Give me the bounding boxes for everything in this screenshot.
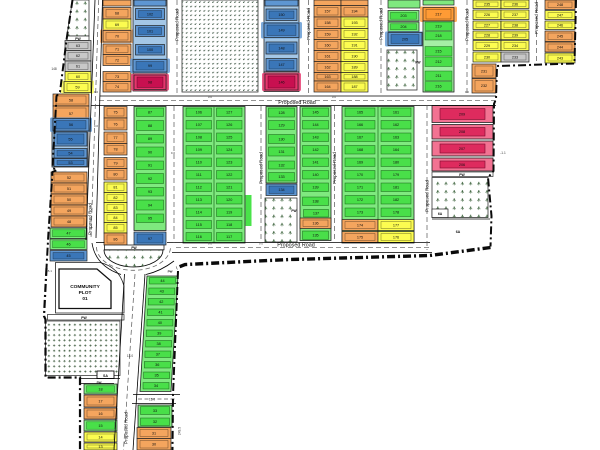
- svg-text:161: 161: [324, 54, 330, 58]
- svg-text:160: 160: [324, 43, 330, 47]
- svg-text:176: 176: [393, 235, 399, 239]
- svg-text:57: 57: [69, 112, 73, 116]
- svg-text:182: 182: [393, 198, 399, 202]
- svg-text:74: 74: [115, 85, 119, 89]
- svg-text:30: 30: [152, 443, 156, 447]
- svg-text:162: 162: [393, 123, 399, 127]
- svg-text:208: 208: [459, 130, 465, 134]
- svg-text:Proposed Road: Proposed Road: [175, 9, 180, 41]
- svg-text:Proposed Road: Proposed Road: [278, 100, 315, 106]
- svg-text:164: 164: [393, 148, 399, 152]
- svg-text:246: 246: [557, 24, 563, 28]
- svg-text:118: 118: [226, 223, 232, 227]
- svg-text:112: 112: [196, 186, 202, 190]
- svg-text:98: 98: [148, 81, 152, 85]
- svg-text:53: 53: [68, 161, 72, 165]
- svg-text:149: 149: [278, 29, 284, 33]
- svg-text:Proposed Road: Proposed Road: [379, 8, 384, 40]
- svg-text:211: 211: [435, 74, 441, 78]
- svg-text:145: 145: [312, 111, 318, 115]
- svg-text:PLOT: PLOT: [79, 290, 92, 296]
- svg-text:147: 147: [278, 63, 284, 67]
- svg-text:168: 168: [357, 148, 363, 152]
- svg-text:Proposed Road: Proposed Road: [124, 412, 129, 444]
- svg-text:157: 157: [324, 10, 330, 14]
- svg-text:108: 108: [196, 136, 202, 140]
- svg-text:77: 77: [113, 136, 117, 140]
- svg-text:228: 228: [484, 34, 490, 38]
- svg-text:92: 92: [148, 177, 152, 181]
- svg-text:31: 31: [152, 431, 156, 435]
- svg-text:107: 107: [196, 123, 202, 127]
- svg-text:76: 76: [113, 122, 117, 126]
- svg-text:111: 111: [196, 173, 202, 177]
- svg-text:235: 235: [484, 3, 490, 7]
- svg-text:Proposed Road: Proposed Road: [277, 243, 314, 249]
- svg-text:207: 207: [459, 147, 465, 151]
- svg-text:9.0: 9.0: [332, 95, 337, 99]
- svg-text:247: 247: [557, 13, 563, 17]
- svg-text:79: 79: [113, 161, 117, 165]
- svg-text:236: 236: [512, 3, 518, 7]
- svg-text:9.0: 9.0: [171, 151, 176, 155]
- svg-text:100: 100: [147, 48, 153, 52]
- svg-text:179: 179: [393, 173, 399, 177]
- svg-text:15.0: 15.0: [149, 398, 155, 402]
- svg-text:68: 68: [115, 12, 119, 16]
- svg-text:206: 206: [459, 163, 465, 167]
- svg-text:106: 106: [196, 111, 202, 115]
- svg-text:Proposed Road: Proposed Road: [306, 8, 311, 40]
- svg-text:18: 18: [98, 387, 102, 391]
- svg-text:144: 144: [312, 123, 318, 127]
- svg-text:116: 116: [196, 235, 202, 239]
- svg-text:181: 181: [393, 186, 399, 190]
- svg-text:78: 78: [113, 148, 117, 152]
- svg-text:137: 137: [313, 212, 319, 216]
- svg-text:14: 14: [98, 435, 102, 439]
- svg-text:114: 114: [196, 211, 202, 215]
- svg-text:9.0: 9.0: [465, 90, 470, 94]
- svg-text:Proposed Road: Proposed Road: [88, 203, 93, 235]
- svg-text:115: 115: [196, 223, 202, 227]
- svg-text:125: 125: [226, 136, 232, 140]
- svg-text:36: 36: [155, 363, 159, 367]
- svg-text:248: 248: [557, 3, 563, 7]
- svg-text:90: 90: [148, 150, 152, 154]
- svg-text:6A: 6A: [456, 230, 461, 234]
- svg-text:97: 97: [148, 237, 152, 241]
- svg-text:PW: PW: [168, 270, 173, 274]
- svg-text:146: 146: [278, 80, 284, 84]
- svg-text:62: 62: [76, 54, 80, 58]
- svg-text:13.0: 13.0: [127, 354, 133, 358]
- svg-text:180: 180: [393, 161, 399, 165]
- svg-text:PW: PW: [131, 246, 137, 250]
- svg-text:-1.1: -1.1: [500, 151, 506, 155]
- svg-text:88: 88: [148, 124, 152, 128]
- svg-text:159: 159: [324, 32, 330, 36]
- svg-text:9.0: 9.0: [94, 124, 99, 128]
- svg-text:165: 165: [357, 111, 363, 115]
- svg-text:Proposed Road: Proposed Road: [465, 9, 470, 41]
- svg-text:01: 01: [82, 296, 88, 302]
- svg-text:131: 131: [278, 150, 284, 154]
- svg-text:192: 192: [351, 32, 357, 36]
- svg-text:193: 193: [351, 21, 357, 25]
- svg-text:58: 58: [69, 98, 73, 102]
- svg-text:134: 134: [278, 188, 284, 192]
- svg-text:6A: 6A: [438, 212, 443, 216]
- svg-text:17: 17: [98, 399, 102, 403]
- svg-text:46: 46: [66, 243, 70, 247]
- svg-text:174: 174: [357, 223, 363, 227]
- svg-text:171: 171: [357, 186, 363, 190]
- svg-text:109: 109: [196, 148, 202, 152]
- svg-text:233: 233: [512, 55, 518, 59]
- svg-text:123: 123: [226, 161, 232, 165]
- svg-text:Proposed Road: Proposed Road: [259, 152, 264, 184]
- svg-text:71: 71: [115, 48, 119, 52]
- svg-text:13: 13: [98, 445, 102, 449]
- svg-text:128: 128: [278, 111, 284, 115]
- svg-text:45: 45: [66, 254, 70, 258]
- svg-text:Proposed Road: Proposed Road: [534, 2, 539, 34]
- svg-text:54: 54: [68, 152, 72, 156]
- svg-text:PW: PW: [459, 173, 465, 177]
- svg-text:243: 243: [557, 56, 563, 60]
- svg-text:42: 42: [159, 300, 163, 304]
- svg-text:73: 73: [115, 75, 119, 79]
- svg-text:59: 59: [75, 85, 79, 89]
- svg-text:44: 44: [160, 279, 164, 283]
- svg-text:164: 164: [324, 85, 330, 89]
- svg-text:194: 194: [351, 10, 357, 14]
- svg-text:16: 16: [98, 412, 102, 416]
- svg-text:161: 161: [393, 111, 399, 115]
- svg-text:139: 139: [312, 186, 318, 190]
- svg-text:SA: SA: [103, 374, 108, 378]
- svg-text:126: 126: [226, 123, 232, 127]
- svg-text:56: 56: [69, 123, 73, 127]
- svg-text:9.0: 9.0: [94, 90, 99, 94]
- svg-text:PW: PW: [415, 61, 420, 65]
- svg-text:226: 226: [484, 13, 490, 17]
- svg-text:189: 189: [351, 65, 357, 69]
- svg-text:172: 172: [357, 198, 363, 202]
- svg-text:212: 212: [435, 60, 441, 64]
- svg-text:COMMUNITY: COMMUNITY: [70, 284, 100, 290]
- svg-text:230: 230: [484, 55, 490, 59]
- svg-text:Proposed Road: Proposed Road: [425, 180, 430, 212]
- svg-text:237: 237: [512, 13, 518, 17]
- svg-text:60: 60: [76, 75, 80, 79]
- svg-text:170: 170: [357, 173, 363, 177]
- svg-text:33: 33: [153, 409, 157, 413]
- svg-text:Proposed Road: Proposed Road: [332, 152, 337, 184]
- svg-text:163: 163: [393, 136, 399, 140]
- svg-text:121: 121: [226, 186, 232, 190]
- svg-text:9.0: 9.0: [259, 242, 264, 246]
- svg-text:249.5: 249.5: [178, 427, 182, 435]
- svg-text:217: 217: [435, 13, 441, 17]
- svg-text:175: 175: [357, 235, 363, 239]
- svg-text:83: 83: [113, 206, 117, 210]
- svg-text:32: 32: [153, 420, 157, 424]
- svg-text:234: 234: [512, 44, 518, 48]
- svg-text:162: 162: [324, 65, 330, 69]
- svg-text:84: 84: [113, 216, 117, 220]
- svg-text:43: 43: [160, 290, 164, 294]
- svg-text:119: 119: [226, 211, 232, 215]
- svg-text:238: 238: [512, 24, 518, 28]
- svg-text:178: 178: [393, 211, 399, 215]
- svg-text:86: 86: [113, 237, 117, 241]
- svg-text:191: 191: [351, 43, 357, 47]
- svg-text:9.0: 9.0: [208, 242, 213, 246]
- svg-text:229: 229: [484, 44, 490, 48]
- svg-text:215: 215: [435, 50, 441, 54]
- svg-text:216: 216: [435, 85, 441, 89]
- svg-text:203: 203: [400, 14, 406, 18]
- svg-text:PW: PW: [291, 209, 296, 213]
- svg-text:72: 72: [115, 58, 119, 62]
- svg-text:81: 81: [113, 186, 117, 190]
- svg-text:80: 80: [113, 173, 117, 177]
- svg-text:117: 117: [226, 235, 232, 239]
- svg-text:95: 95: [148, 217, 152, 221]
- svg-text:148: 148: [51, 67, 57, 71]
- svg-text:85: 85: [113, 226, 117, 230]
- svg-text:142: 142: [312, 148, 318, 152]
- svg-text:40: 40: [158, 321, 162, 325]
- svg-text:190: 190: [351, 54, 357, 58]
- svg-text:133: 133: [278, 175, 284, 179]
- svg-text:129: 129: [278, 123, 284, 127]
- svg-text:204: 204: [400, 25, 406, 29]
- svg-text:163: 163: [324, 75, 330, 79]
- svg-text:150: 150: [278, 13, 284, 17]
- svg-text:99: 99: [148, 64, 152, 68]
- svg-text:135: 135: [312, 234, 318, 238]
- svg-text:120: 120: [226, 198, 232, 202]
- svg-text:187: 187: [351, 85, 357, 89]
- svg-text:227: 227: [484, 24, 490, 28]
- svg-text:218: 218: [435, 34, 441, 38]
- svg-text:173: 173: [357, 211, 363, 215]
- svg-text:239: 239: [512, 34, 518, 38]
- svg-text:166: 166: [357, 123, 363, 127]
- svg-text:50: 50: [67, 198, 71, 202]
- svg-text:94: 94: [148, 203, 152, 207]
- svg-text:41: 41: [158, 311, 162, 315]
- svg-text:245: 245: [557, 35, 563, 39]
- svg-text:130: 130: [278, 137, 284, 141]
- svg-text:143: 143: [312, 136, 318, 140]
- svg-text:9.0: 9.0: [208, 95, 213, 99]
- svg-text:113: 113: [196, 198, 202, 202]
- svg-text:122: 122: [226, 173, 232, 177]
- svg-text:52: 52: [67, 176, 71, 180]
- svg-text:63: 63: [76, 44, 80, 48]
- svg-text:158: 158: [324, 21, 330, 25]
- svg-text:89: 89: [148, 137, 152, 141]
- svg-text:82: 82: [113, 196, 117, 200]
- svg-text:136: 136: [312, 222, 318, 226]
- svg-text:127: 127: [226, 111, 232, 115]
- svg-text:48: 48: [67, 220, 71, 224]
- svg-text:35: 35: [154, 374, 158, 378]
- svg-text:209: 209: [459, 112, 465, 116]
- svg-text:231: 231: [481, 69, 487, 73]
- svg-text:47: 47: [66, 232, 70, 236]
- svg-text:148: 148: [278, 46, 284, 50]
- svg-text:51: 51: [67, 187, 71, 191]
- svg-text:34: 34: [154, 384, 158, 388]
- svg-text:101: 101: [147, 29, 153, 33]
- svg-text:70: 70: [115, 35, 119, 39]
- svg-text:167: 167: [357, 136, 363, 140]
- svg-text:110: 110: [196, 161, 202, 165]
- svg-text:15: 15: [98, 424, 102, 428]
- svg-text:140: 140: [312, 173, 318, 177]
- svg-text:37: 37: [156, 353, 160, 357]
- svg-text:38: 38: [156, 342, 160, 346]
- svg-text:232: 232: [481, 84, 487, 88]
- svg-text:188: 188: [351, 75, 357, 79]
- svg-text:141: 141: [312, 161, 318, 165]
- svg-text:244: 244: [557, 45, 563, 49]
- svg-text:169: 169: [357, 161, 363, 165]
- svg-text:138: 138: [312, 200, 318, 204]
- svg-text:75: 75: [113, 111, 117, 115]
- svg-text:124: 124: [226, 148, 232, 152]
- svg-text:69: 69: [115, 23, 119, 27]
- svg-text:205: 205: [402, 37, 408, 41]
- svg-text:102: 102: [147, 12, 153, 16]
- svg-text:39: 39: [157, 332, 161, 336]
- svg-text:87: 87: [148, 111, 152, 115]
- svg-text:PW: PW: [81, 316, 87, 320]
- svg-text:93: 93: [148, 190, 152, 194]
- svg-text:55: 55: [68, 137, 72, 141]
- svg-text:132: 132: [278, 163, 284, 167]
- svg-text:219: 219: [435, 25, 441, 29]
- svg-text:91: 91: [148, 164, 152, 168]
- svg-text:49: 49: [67, 209, 71, 213]
- svg-text:61: 61: [76, 65, 80, 69]
- svg-text:177: 177: [393, 223, 399, 227]
